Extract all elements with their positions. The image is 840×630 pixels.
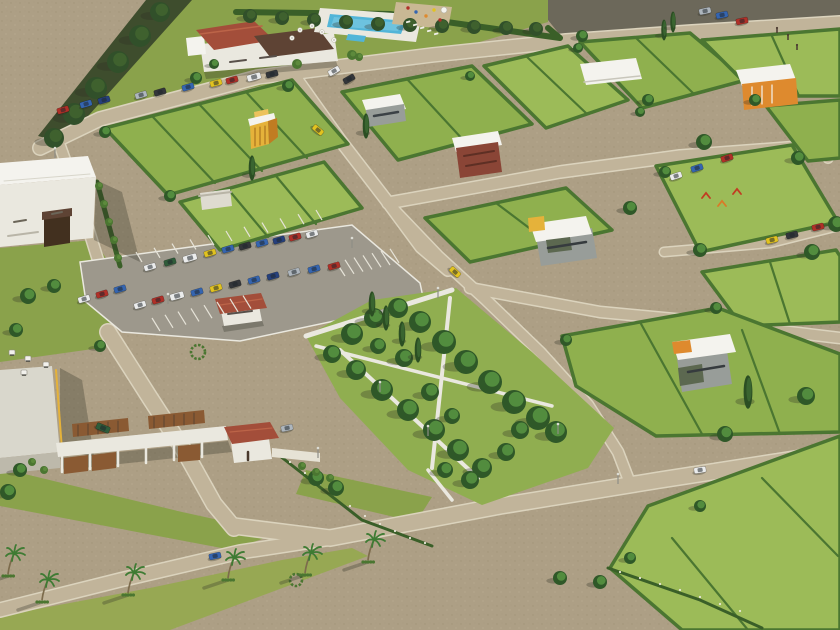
shrub: [355, 53, 363, 61]
tree-highlight: [51, 280, 60, 289]
tree-highlight: [13, 324, 22, 333]
tree-highlight: [407, 19, 416, 28]
shrub-highlight: [296, 61, 301, 66]
playground-toy: [432, 8, 435, 11]
tree-highlight: [403, 401, 417, 415]
shrub-highlight: [98, 183, 102, 187]
pedestrian-head: [787, 34, 789, 36]
fence-post: [639, 577, 641, 579]
tree-highlight: [461, 352, 476, 367]
lamp-head: [54, 147, 57, 150]
model-house-brick-part: [456, 142, 502, 178]
tree-highlight: [311, 14, 320, 23]
shrub: [326, 474, 334, 482]
tree-highlight: [374, 339, 384, 349]
tree-highlight: [700, 135, 710, 145]
playground-toy: [414, 10, 417, 13]
pool-umbrella: [310, 24, 315, 29]
conifer-highlight: [417, 339, 421, 357]
tree-highlight: [502, 444, 513, 455]
tree-highlight: [448, 409, 458, 419]
tree-highlight: [135, 27, 149, 41]
fence-post: [699, 596, 701, 598]
conifer-highlight: [371, 293, 375, 311]
tree-highlight: [509, 392, 524, 407]
tree-highlight: [441, 463, 451, 473]
tree-highlight: [557, 572, 566, 581]
fence-post: [349, 505, 351, 507]
lamp-head: [437, 287, 440, 290]
shrub: [100, 200, 108, 208]
tree-highlight: [645, 95, 652, 102]
tree-highlight: [453, 441, 467, 455]
tree-highlight: [247, 10, 256, 19]
shrub-highlight: [103, 201, 107, 205]
tree-highlight: [579, 31, 586, 38]
pool-umbrella: [320, 30, 325, 35]
tree-highlight: [91, 79, 105, 93]
tree-highlight: [17, 464, 26, 473]
pedestrian-head: [796, 44, 798, 46]
tree-highlight: [102, 127, 109, 134]
shrub: [312, 468, 320, 476]
conifer-highlight: [365, 115, 369, 133]
tree-highlight: [167, 191, 174, 198]
fence-post: [379, 523, 381, 525]
golf-cart: [9, 350, 15, 356]
tree-highlight: [721, 427, 731, 437]
lamp-head: [317, 447, 320, 450]
lamp-head: [167, 293, 170, 296]
tree-highlight: [802, 388, 813, 399]
shrub: [114, 254, 122, 262]
golf-cart-base: [22, 374, 26, 375]
golf-cart-canopy: [9, 350, 15, 355]
shrub: [292, 59, 302, 69]
shrub-highlight: [315, 469, 319, 473]
clubhouse-building-part: [186, 36, 206, 56]
model-house-brick: [452, 131, 502, 178]
tree-highlight: [439, 332, 454, 347]
playground-toy: [438, 18, 441, 21]
fence-post: [364, 515, 366, 517]
shrub-highlight: [108, 219, 112, 223]
pool-umbrella: [290, 36, 295, 41]
scene: [0, 0, 840, 630]
fence-post: [739, 610, 741, 612]
fence-post: [424, 542, 426, 544]
umbrella-pole: [291, 37, 292, 38]
shrub: [40, 466, 48, 474]
tree-highlight: [193, 73, 200, 80]
tree-highlight: [212, 60, 218, 66]
shrub-highlight: [113, 237, 117, 241]
tree-highlight: [576, 44, 582, 50]
tree-highlight: [332, 481, 342, 491]
tree-highlight: [24, 289, 34, 299]
lamp-head: [427, 425, 430, 428]
umbrella-pole: [299, 29, 300, 30]
tree-highlight: [50, 130, 62, 142]
fence-post: [719, 603, 721, 605]
tree-highlight: [113, 53, 127, 67]
fence-post: [409, 537, 411, 539]
tree-highlight: [328, 346, 339, 357]
pool-umbrella: [298, 28, 303, 33]
tree-highlight: [697, 244, 706, 253]
tree-highlight: [516, 422, 527, 433]
entrance-gate-portico-part: [178, 444, 200, 462]
tree-highlight: [713, 303, 720, 310]
shrub-highlight: [31, 459, 35, 463]
tree-highlight: [697, 501, 704, 508]
shrub: [110, 236, 118, 244]
lamp-head: [379, 381, 382, 384]
golf-cart-canopy: [25, 356, 31, 361]
fence-post: [659, 583, 661, 585]
tree-highlight: [415, 313, 429, 327]
tree-highlight: [429, 421, 443, 435]
tree-highlight: [468, 72, 474, 78]
tree-highlight: [394, 300, 406, 312]
shrub: [95, 182, 103, 190]
shrub-highlight: [351, 52, 356, 57]
tree-highlight: [597, 576, 606, 585]
lamp-head: [557, 423, 560, 426]
golf-cart-canopy: [21, 370, 27, 375]
pedestrian-head: [776, 27, 778, 29]
conifer-highlight: [251, 157, 255, 175]
tree-highlight: [563, 335, 570, 342]
conifer-highlight: [401, 323, 405, 341]
lamp-head: [617, 473, 620, 476]
tree-highlight: [638, 108, 644, 114]
palm-base-shrub: [46, 600, 49, 603]
palm-base-shrub: [132, 593, 135, 596]
umbrella-pole: [333, 39, 334, 40]
palm-base-shrub: [232, 578, 235, 581]
tree-highlight: [279, 12, 288, 21]
model-house-gray-orange-part: [672, 340, 692, 354]
golf-cart-base: [44, 366, 48, 367]
tree-highlight: [503, 22, 512, 31]
tree-highlight: [97, 341, 104, 348]
golf-cart-base: [10, 354, 14, 355]
tree-highlight: [533, 23, 542, 32]
tree-highlight: [285, 81, 292, 88]
tree-highlight: [4, 485, 14, 495]
palm-base-shrub: [372, 560, 375, 563]
aerial-masterplan-render: [0, 0, 840, 630]
umbrella-pole: [321, 31, 322, 32]
shrub-highlight: [358, 54, 362, 58]
lamp-head: [351, 237, 354, 240]
fence-post: [619, 571, 621, 573]
shrub-ring: [191, 345, 205, 359]
tree-highlight: [156, 4, 168, 16]
pool-umbrella: [332, 38, 337, 43]
tree-highlight: [485, 372, 500, 387]
tree-highlight: [466, 472, 477, 483]
shrub: [28, 458, 36, 466]
model-house-gray-orange: [672, 334, 736, 392]
golf-cart: [25, 356, 31, 362]
palm-base-shrub: [12, 574, 15, 577]
conifer-highlight: [746, 378, 751, 402]
service-building-part: [0, 366, 60, 458]
tree-highlight: [795, 152, 804, 161]
tree-highlight: [662, 167, 669, 174]
shrub-highlight: [301, 463, 305, 467]
tree-highlight: [343, 16, 352, 25]
model-house-gray-yellow-part: [528, 216, 545, 232]
tree-highlight: [808, 245, 818, 255]
entrance-gate-portico-part: [92, 452, 116, 471]
tree-highlight: [533, 408, 548, 423]
playground-toy: [406, 6, 409, 9]
conifer-highlight: [672, 13, 675, 28]
golf-cart-base: [26, 360, 30, 361]
tree-highlight: [471, 21, 480, 30]
tree-highlight: [375, 18, 384, 27]
shrub: [105, 218, 113, 226]
conifer-highlight: [385, 307, 389, 325]
tree-highlight: [352, 362, 364, 374]
fence-post: [679, 589, 681, 591]
golf-cart: [43, 362, 49, 368]
tree-highlight: [478, 460, 490, 472]
shrub: [298, 462, 306, 470]
golf-cart-canopy: [43, 362, 49, 367]
shrub-highlight: [43, 467, 47, 471]
entrance-gate-portico-part: [64, 455, 88, 474]
shade-canopy: [441, 7, 447, 13]
car-glass: [697, 468, 703, 473]
tree-highlight: [627, 553, 634, 560]
palm-base-shrub: [309, 573, 312, 576]
tree-highlight: [752, 95, 759, 102]
fence-post: [289, 461, 291, 463]
playground-toy: [424, 14, 427, 17]
fence-post: [394, 530, 396, 532]
shrub-highlight: [329, 475, 333, 479]
shrub-highlight: [117, 255, 121, 259]
tree-highlight: [426, 384, 437, 395]
umbrella-pole: [311, 25, 312, 26]
tree-highlight: [347, 325, 361, 339]
tree-highlight: [627, 202, 636, 211]
tree: [0, 484, 16, 500]
fence-post: [304, 472, 306, 474]
golf-cart: [21, 370, 27, 376]
